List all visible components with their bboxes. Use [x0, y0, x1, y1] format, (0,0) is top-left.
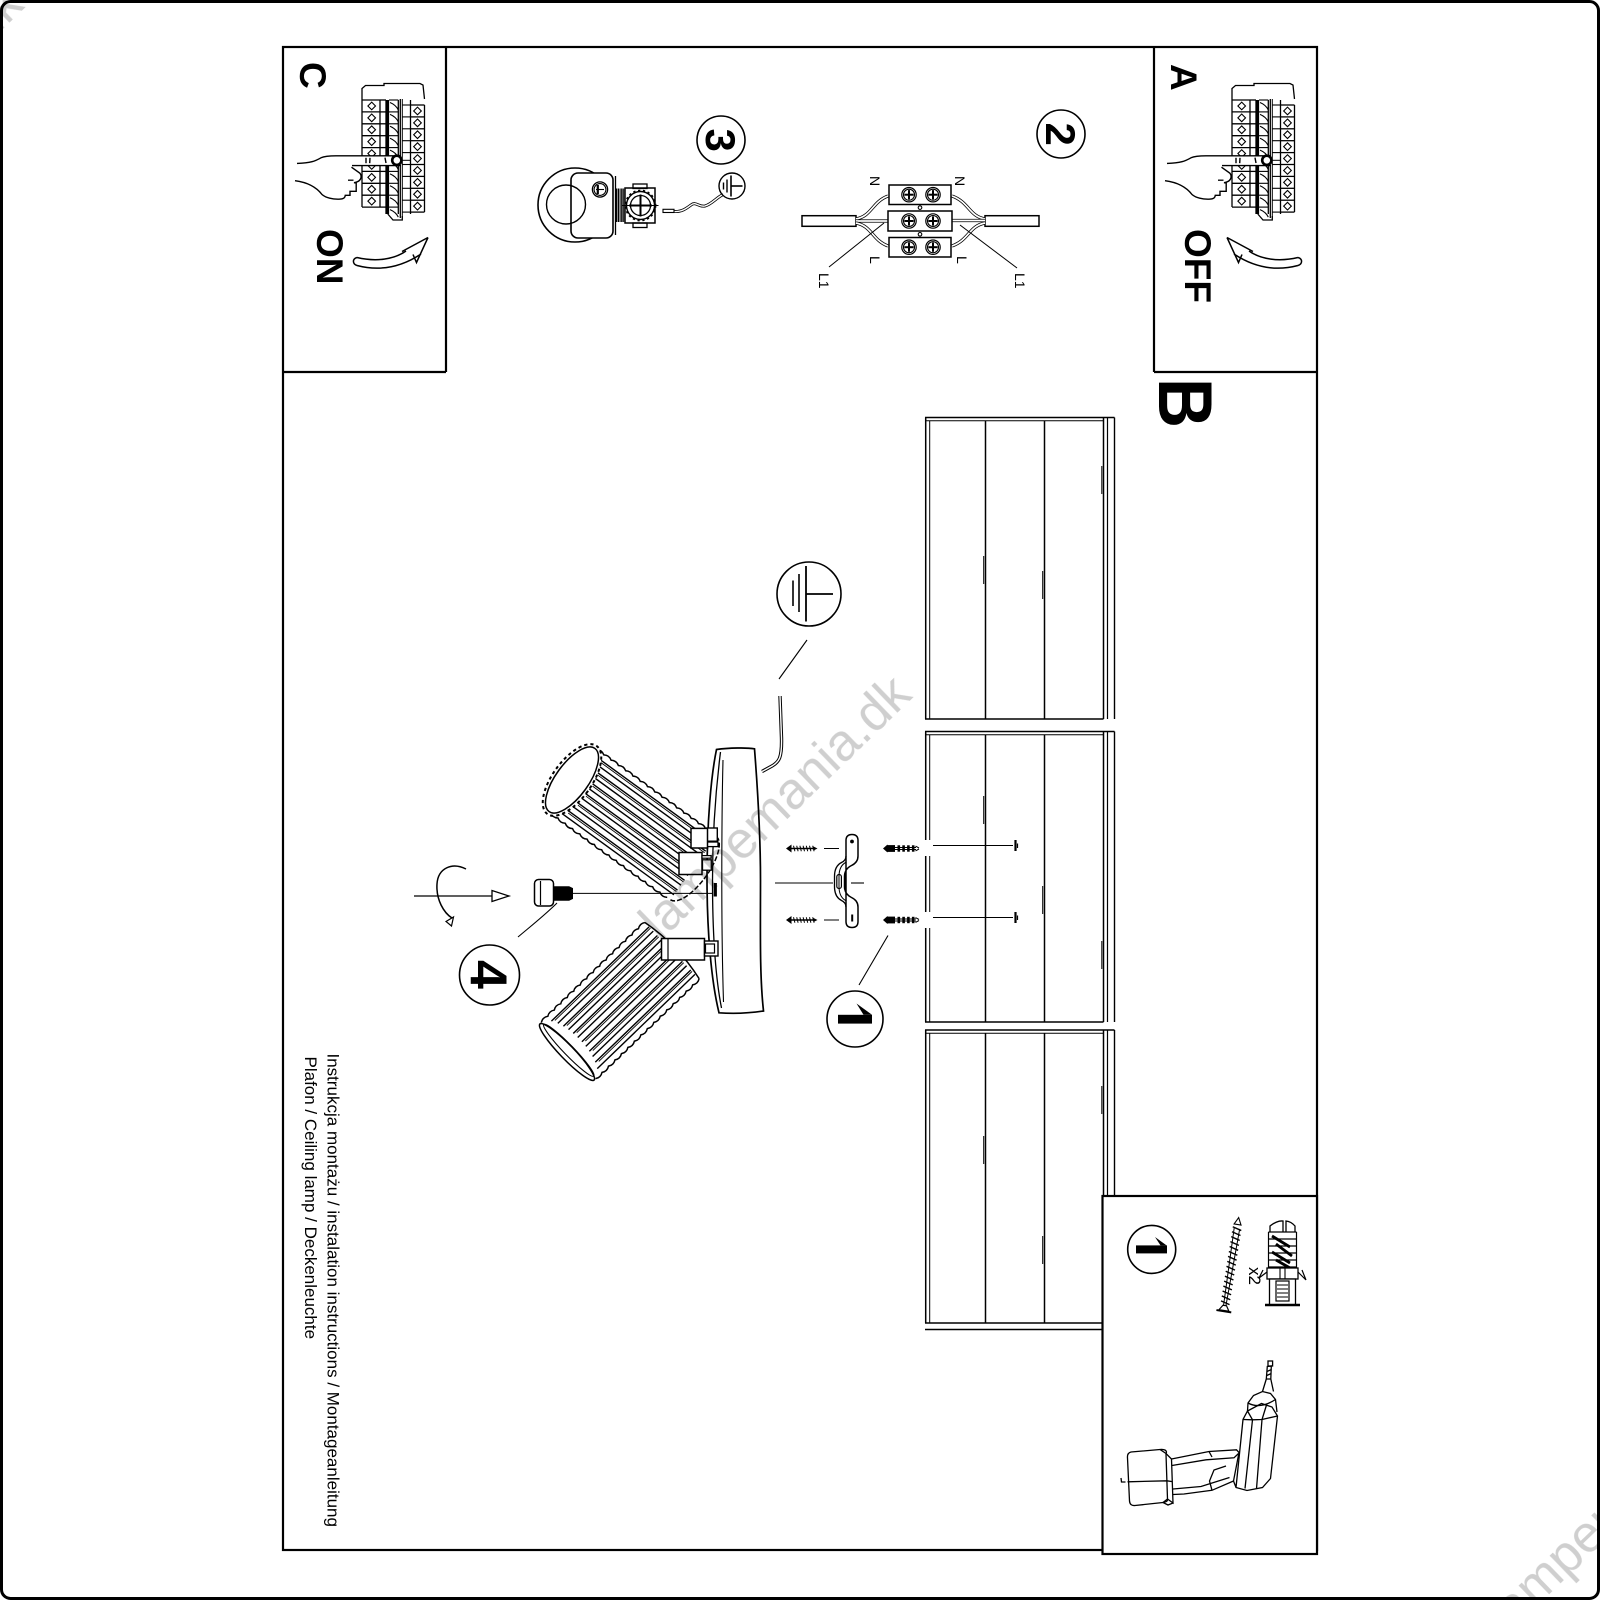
svg-text:N: N: [952, 176, 968, 186]
svg-text:L1: L1: [1012, 273, 1028, 289]
svg-text:lampemania.dk: lampemania.dk: [1474, 1357, 1600, 1600]
svg-text:3: 3: [697, 129, 744, 152]
svg-text:N: N: [867, 176, 883, 186]
svg-text:lampemania.dk: lampemania.dk: [628, 663, 923, 950]
svg-text:C: C: [292, 62, 333, 89]
svg-text:L: L: [867, 256, 883, 264]
svg-text:L1: L1: [816, 273, 832, 289]
svg-text:Instrukcja montażu / instalati: Instrukcja montażu / instalation instruc…: [324, 1054, 343, 1527]
svg-text:OFF: OFF: [1177, 229, 1218, 303]
svg-text:Plafon / Ceiling lamp / Decken: Plafon / Ceiling lamp / Deckenleuchte: [301, 1057, 320, 1340]
svg-text:4: 4: [459, 960, 517, 989]
svg-text:A: A: [1163, 64, 1204, 91]
svg-text:2: 2: [1037, 123, 1084, 146]
svg-text:L: L: [954, 256, 970, 264]
svg-text:lampemania.dk: lampemania.dk: [0, 0, 35, 261]
svg-text:ON: ON: [309, 229, 350, 285]
svg-text:B: B: [1142, 378, 1227, 428]
